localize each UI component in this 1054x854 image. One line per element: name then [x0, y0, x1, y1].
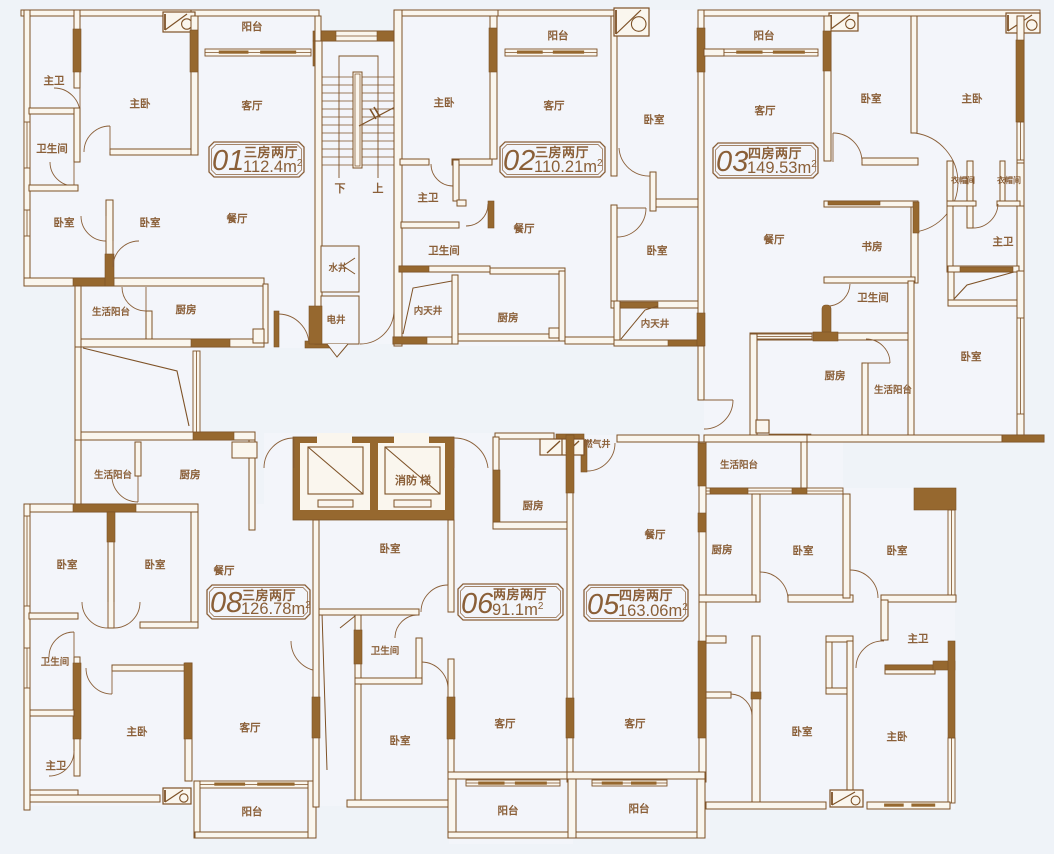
svg-text:110.21m2: 110.21m2 — [534, 158, 603, 176]
svg-text:衣帽间: 衣帽间 — [997, 175, 1021, 185]
svg-text:客厅: 客厅 — [624, 717, 646, 730]
svg-text:主卫: 主卫 — [418, 191, 439, 204]
svg-text:卧室: 卧室 — [57, 558, 78, 571]
svg-text:生活阳台: 生活阳台 — [92, 306, 131, 318]
svg-text:客厅: 客厅 — [239, 721, 261, 734]
svg-text:阳台: 阳台 — [754, 29, 775, 42]
svg-text:91.1m2: 91.1m2 — [492, 601, 544, 619]
svg-text:内天井: 内天井 — [414, 305, 443, 317]
svg-text:生活阳台: 生活阳台 — [94, 469, 133, 481]
svg-text:卧室: 卧室 — [887, 544, 908, 557]
svg-text:卫生间: 卫生间 — [41, 656, 70, 668]
svg-text:客厅: 客厅 — [754, 104, 776, 117]
svg-text:主卫: 主卫 — [993, 235, 1014, 248]
svg-text:149.53m2: 149.53m2 — [747, 159, 817, 177]
svg-text:06: 06 — [461, 588, 494, 620]
svg-text:两房两厅: 两房两厅 — [493, 587, 547, 602]
svg-text:卫生间: 卫生间 — [36, 142, 68, 155]
svg-text:03: 03 — [716, 146, 748, 178]
svg-text:餐厅: 餐厅 — [644, 528, 666, 541]
svg-text:下: 下 — [335, 182, 346, 195]
svg-text:上: 上 — [373, 181, 384, 195]
svg-text:厨房: 厨房 — [176, 303, 197, 316]
svg-text:主卧: 主卧 — [887, 730, 908, 743]
svg-text:主卫: 主卫 — [44, 74, 65, 87]
svg-text:卧室: 卧室 — [380, 542, 401, 555]
svg-text:餐厅: 餐厅 — [226, 212, 248, 225]
svg-text:05: 05 — [587, 589, 620, 621]
svg-text:卧室: 卧室 — [390, 734, 411, 747]
svg-text:消防 梯: 消防 梯 — [395, 473, 431, 487]
svg-text:燃气井: 燃气井 — [583, 438, 610, 449]
svg-text:餐厅: 餐厅 — [513, 222, 535, 235]
svg-text:主卫: 主卫 — [46, 759, 67, 772]
svg-text:卫生间: 卫生间 — [428, 244, 460, 257]
svg-text:餐厅: 餐厅 — [763, 233, 785, 246]
svg-text:厨房: 厨房 — [498, 311, 519, 324]
svg-text:客厅: 客厅 — [494, 717, 516, 730]
svg-text:阳台: 阳台 — [548, 29, 569, 42]
svg-text:卫生间: 卫生间 — [371, 645, 400, 657]
svg-text:112.4m2: 112.4m2 — [243, 158, 303, 176]
svg-text:卧室: 卧室 — [54, 216, 75, 229]
svg-text:卫生间: 卫生间 — [857, 291, 889, 304]
svg-text:厨房: 厨房 — [712, 543, 733, 556]
svg-text:卧室: 卧室 — [647, 244, 668, 257]
svg-text:主卧: 主卧 — [962, 92, 983, 105]
svg-text:卧室: 卧室 — [145, 558, 166, 571]
svg-text:卧室: 卧室 — [861, 92, 882, 105]
svg-text:厨房: 厨房 — [825, 369, 846, 382]
svg-text:餐厅: 餐厅 — [213, 564, 235, 577]
svg-text:01: 01 — [212, 145, 244, 177]
svg-text:阳台: 阳台 — [242, 805, 263, 818]
svg-text:卧室: 卧室 — [792, 725, 813, 738]
svg-text:08: 08 — [210, 587, 242, 619]
svg-text:阳台: 阳台 — [242, 20, 263, 33]
svg-text:厨房: 厨房 — [180, 468, 201, 481]
svg-text:卧室: 卧室 — [793, 544, 814, 557]
svg-text:水井: 水井 — [328, 262, 348, 274]
svg-text:卧室: 卧室 — [140, 216, 161, 229]
svg-text:阳台: 阳台 — [629, 802, 650, 815]
svg-text:02: 02 — [503, 145, 535, 177]
svg-text:厨房: 厨房 — [523, 499, 544, 512]
svg-text:内天井: 内天井 — [641, 318, 670, 330]
svg-text:主卧: 主卧 — [127, 725, 148, 738]
svg-text:阳台: 阳台 — [498, 804, 519, 817]
svg-text:衣帽间: 衣帽间 — [951, 175, 975, 185]
svg-text:主卫: 主卫 — [908, 632, 929, 645]
svg-text:客厅: 客厅 — [241, 99, 263, 112]
svg-text:163.06m2: 163.06m2 — [618, 602, 688, 620]
svg-text:卧室: 卧室 — [644, 113, 665, 126]
svg-text:客厅: 客厅 — [543, 99, 565, 112]
svg-text:四房两厅: 四房两厅 — [619, 588, 673, 603]
svg-text:卧室: 卧室 — [961, 350, 982, 363]
svg-text:主卧: 主卧 — [130, 97, 151, 110]
svg-text:生活阳台: 生活阳台 — [874, 384, 913, 396]
svg-text:生活阳台: 生活阳台 — [720, 459, 759, 471]
svg-text:126.78m2: 126.78m2 — [241, 600, 311, 618]
svg-text:电井: 电井 — [326, 314, 346, 326]
svg-text:主卧: 主卧 — [434, 96, 455, 109]
svg-text:书房: 书房 — [862, 240, 883, 253]
